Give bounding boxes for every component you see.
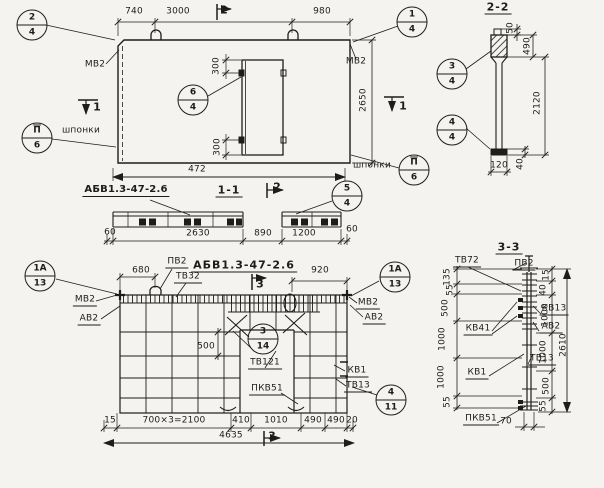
dim-1000-a-right: 1000: [542, 303, 551, 327]
dim-2120: 2120: [534, 91, 543, 115]
dim-980: 980: [313, 8, 331, 17]
dim-740: 740: [125, 8, 143, 17]
reinf-pkv51-label: ПКВ51: [249, 385, 285, 396]
callout-sheet: 4: [398, 23, 427, 37]
callout-1a-13-left: 1А 13: [25, 261, 56, 292]
reinf-av2-right-label: АВ2: [363, 314, 386, 325]
dim-55-right: 55: [540, 400, 549, 412]
callout-number: 3: [438, 60, 467, 75]
reinf-tv13-label: ТВ13: [344, 382, 372, 393]
callout-6-4: 6 4: [178, 85, 209, 116]
dim-500-right: 500: [543, 377, 552, 395]
dim-40: 40: [517, 158, 526, 170]
plan-mv2-left-label: МВ2: [85, 61, 105, 70]
callout-sheet: 6: [23, 139, 52, 153]
dim-40-right: 40: [540, 284, 549, 296]
callout-number: 4: [377, 386, 406, 401]
callout-number: 6: [179, 86, 208, 101]
section-3-3-lines: [453, 256, 571, 431]
callout-sheet: 11: [377, 401, 406, 415]
callout-sheet: 4: [179, 101, 208, 115]
callout-sheet: 4: [438, 75, 467, 89]
callout-key-left: П 6: [22, 123, 53, 154]
dim-680: 680: [132, 267, 150, 276]
reinf-pv2-label: ПВ2: [165, 258, 188, 269]
callout-sheet: 13: [381, 278, 410, 292]
dim-15: 15: [104, 417, 116, 426]
section-cut-3-bottom-label: 3: [268, 431, 276, 442]
dim-490-a: 490: [304, 417, 322, 426]
dim-1000-b-left: 1000: [438, 365, 447, 389]
section-cut-2-top-label: 2: [220, 5, 228, 16]
dim-500-reinf: 500: [197, 343, 215, 352]
sec33-kv41-label: КВ41: [464, 325, 493, 336]
callout-number: 1: [398, 8, 427, 23]
keys-right-label: шпонки: [353, 162, 391, 171]
dim-70: 70: [500, 418, 512, 427]
callout-4-4: 4 4: [437, 115, 468, 146]
callout-number: 4: [438, 116, 467, 131]
dim-920: 920: [311, 267, 329, 276]
dim-1200: 1200: [292, 230, 316, 239]
callout-number: 1А: [381, 263, 410, 278]
dim-60-left: 60: [104, 229, 116, 238]
dim-55-bottom-left: 55: [444, 396, 453, 408]
dim-490: 490: [524, 37, 533, 55]
callout-sheet: 4: [438, 131, 467, 145]
callout-sheet: 6: [400, 171, 429, 185]
dim-15-right: 15: [543, 269, 552, 281]
callout-1a-13-right: 1А 13: [380, 262, 411, 293]
dim-3000: 3000: [166, 8, 190, 17]
section-2-2-title: 2-2: [485, 2, 512, 15]
keys-left-label: шпонки: [62, 127, 100, 136]
callout-number: 5: [333, 182, 362, 197]
drawing-sheet: 740 3000 2 980 МВ2 МВ2 300 300 1 1 шпонк…: [0, 0, 604, 488]
callout-sheet: 14: [249, 340, 278, 354]
dim-300-top: 300: [213, 57, 222, 75]
section-cut-3-top-label: 3: [256, 279, 264, 290]
callout-key-right: П 6: [399, 155, 430, 186]
sec33-kv1-label: КВ1: [466, 369, 489, 380]
dim-4635: 4635: [219, 432, 243, 441]
section-cut-1-right-label: 1: [399, 101, 407, 112]
callout-3-14: 3 14: [248, 324, 279, 355]
dim-2650: 2650: [360, 88, 369, 112]
dim-50: 50: [507, 22, 516, 34]
callout-1-4: 1 4: [397, 7, 428, 38]
dim-1010: 1010: [264, 417, 288, 426]
callout-number: П: [23, 124, 52, 139]
reinf-av2-left-label: АВ2: [78, 315, 101, 326]
plan-view-lines: [46, 4, 404, 181]
dim-490-b: 490: [327, 417, 345, 426]
reinf-tv121-label: ТВ121: [248, 359, 282, 370]
section-cut-2-bottom-label: 2: [273, 182, 281, 193]
callout-5-4: 5 4: [332, 181, 363, 212]
dim-700x3: 700×3=2100: [143, 417, 206, 426]
sec33-pv2-label: ПВ2: [512, 260, 535, 271]
dim-410: 410: [232, 417, 250, 426]
callout-3-4: 3 4: [437, 59, 468, 90]
callout-number: 2: [18, 11, 47, 26]
dim-55-top-left: 55: [447, 284, 456, 296]
reinf-tv32-label: ТВ32: [174, 273, 202, 284]
dim-472: 472: [188, 166, 206, 175]
dim-20: 20: [346, 417, 358, 426]
dim-60-right: 60: [346, 226, 358, 235]
dim-1000-b-right: 1000: [540, 340, 549, 364]
reinf-kv1-label: КВ1: [346, 367, 369, 378]
callout-sheet: 4: [333, 197, 362, 211]
sec33-tv72-label: ТВ72: [453, 257, 481, 268]
sec33-pkv51-label: ПКВ51: [463, 415, 499, 426]
dim-1000-a-left: 1000: [439, 327, 448, 351]
reinf-mv2-right-label: МВ2: [356, 299, 380, 310]
dim-2630: 2630: [186, 230, 210, 239]
section-3-3-title: 3-3: [496, 242, 523, 255]
plan-mv2-right-label: МВ2: [346, 58, 366, 67]
dim-120: 120: [490, 162, 508, 171]
dim-890: 890: [254, 230, 272, 239]
dim-2610: 2610: [560, 333, 569, 357]
callout-number: 1А: [26, 262, 55, 277]
callout-sheet: 4: [18, 26, 47, 40]
callout-number: 3: [249, 325, 278, 340]
section-cut-1-left-label: 1: [93, 102, 101, 113]
callout-number: П: [400, 156, 429, 171]
callout-2-4: 2 4: [17, 10, 48, 41]
dim-500-left: 500: [442, 299, 451, 317]
callout-4-11: 4 11: [376, 385, 407, 416]
callout-sheet: 13: [26, 277, 55, 291]
dim-300-bottom: 300: [214, 138, 223, 156]
reinf-title: АБВ1.3-47-2.6: [191, 260, 297, 273]
reinf-mv2-left-label: МВ2: [73, 296, 97, 307]
section-1-1-title: 1-1: [216, 185, 243, 198]
part-mark-label: АБВ1.3-47-2.6: [82, 185, 169, 197]
